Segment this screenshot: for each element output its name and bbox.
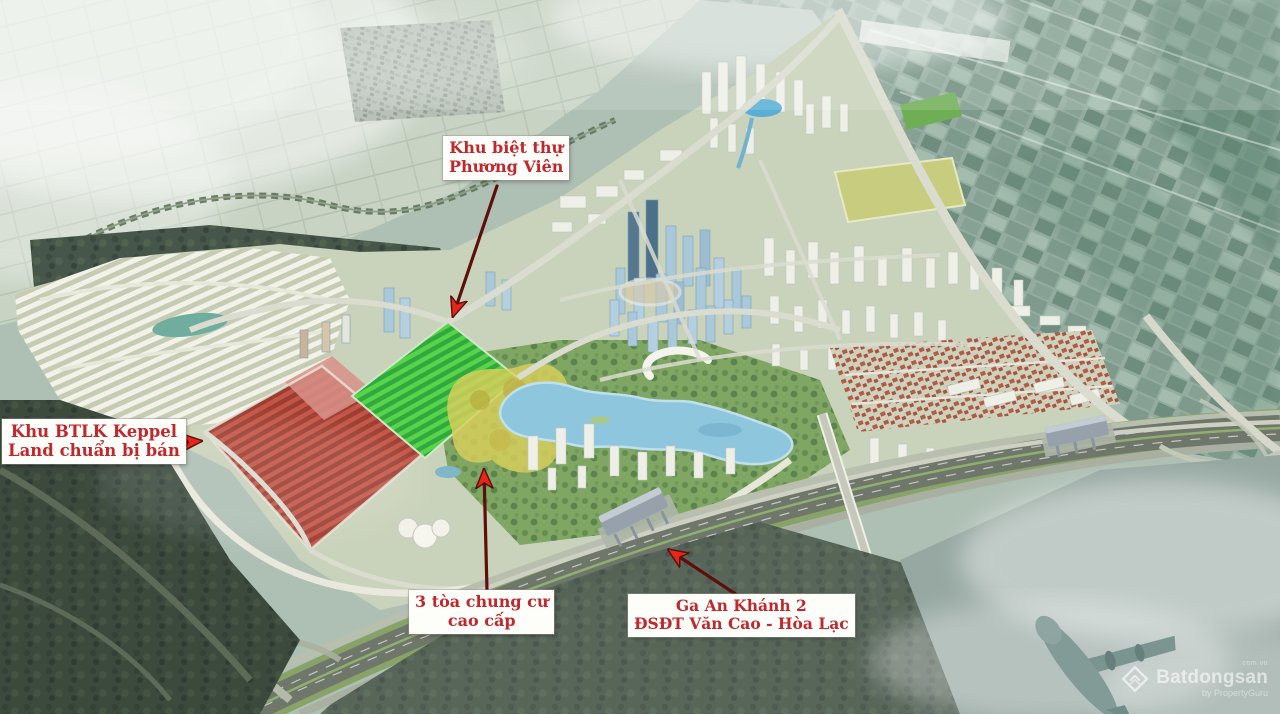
label-keppel: Khu BTLK Keppel Land chuẩn bị bán bbox=[2, 419, 186, 464]
watermark-brand: Batdongsan bbox=[1156, 668, 1268, 687]
watermark-batdongsan: .com.vn Batdongsan by PropertyGuru bbox=[1121, 660, 1268, 698]
masterplan-render: Khu biệt thự Phương Viên Khu BTLK Keppel… bbox=[0, 0, 1280, 714]
label-ga-an-khanh: Ga An Khánh 2 ĐSĐT Văn Cao - Hòa Lạc bbox=[628, 594, 855, 637]
label-ga-an-khanh-line2: ĐSĐT Văn Cao - Hòa Lạc bbox=[634, 615, 849, 633]
watermark-domain: .com.vn bbox=[1240, 660, 1268, 667]
label-keppel-line2: Land chuẩn bị bán bbox=[8, 441, 180, 460]
watermark-byline: by PropertyGuru bbox=[1202, 689, 1268, 698]
label-chung-cu-line1: 3 tòa chung cư bbox=[415, 593, 548, 612]
label-chung-cu: 3 tòa chung cư cao cấp bbox=[409, 590, 554, 634]
label-phuong-vien-line2: Phương Viên bbox=[449, 158, 563, 177]
label-phuong-vien: Khu biệt thự Phương Viên bbox=[443, 136, 569, 180]
label-phuong-vien-line1: Khu biệt thự bbox=[449, 139, 563, 158]
label-ga-an-khanh-line1: Ga An Khánh 2 bbox=[634, 597, 849, 615]
label-chung-cu-line2: cao cấp bbox=[415, 612, 548, 631]
batdongsan-logo-icon bbox=[1121, 665, 1149, 693]
label-keppel-line1: Khu BTLK Keppel bbox=[8, 422, 180, 441]
